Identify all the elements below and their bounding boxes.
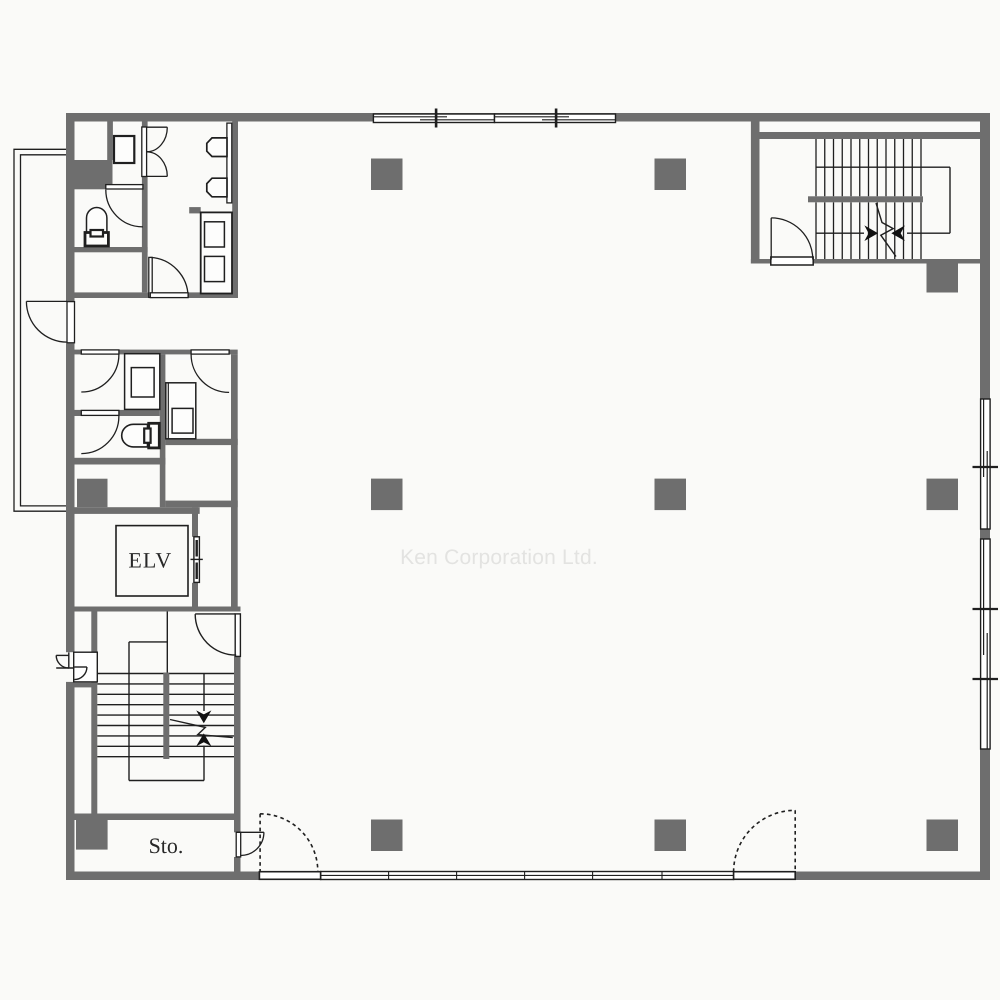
svg-text:Sto.: Sto. bbox=[149, 833, 184, 858]
svg-text:ELV: ELV bbox=[128, 548, 172, 573]
svg-text:Ken Corporation Ltd.: Ken Corporation Ltd. bbox=[400, 546, 598, 569]
